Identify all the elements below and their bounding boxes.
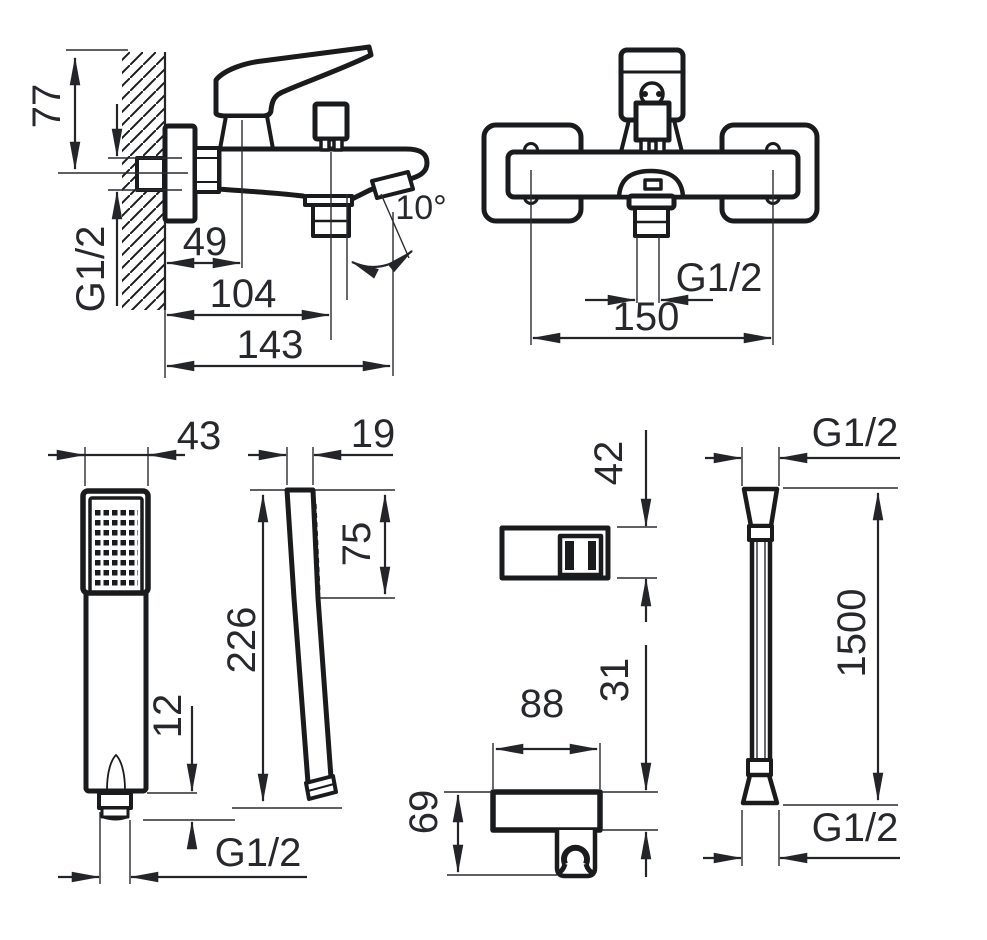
handshower-side-body [287, 490, 331, 783]
bottom-outlet [305, 196, 352, 236]
holder-hook [557, 830, 595, 876]
dim-label-104: 104 [210, 272, 277, 316]
dim-label-1500: 1500 [830, 589, 874, 678]
dim-label-226: 226 [220, 607, 264, 674]
dim-label-hose-bottom-thread: G1/2 [812, 806, 899, 850]
dim-label-hose-top-thread: G1/2 [812, 411, 899, 455]
spray-nozzle-grid [95, 510, 138, 589]
dim-label-outlet-thread: G1/2 [676, 256, 763, 300]
dim-label-spout-angle: 10° [395, 189, 446, 227]
view-handshower-front: 43 12 G1/2 [48, 414, 307, 884]
dim-label-88: 88 [520, 682, 565, 726]
hose-top-collar [749, 526, 772, 540]
dim-label-31: 31 [593, 658, 637, 703]
handshower-handle [86, 591, 146, 791]
mixer-side-body [137, 47, 427, 236]
cartridge-collar [220, 116, 273, 149]
dim-label-143: 143 [237, 323, 304, 367]
dim-label-wall-thread: G1/2 [69, 226, 113, 313]
clamp-bar-right [588, 541, 596, 570]
view-holder-front: 88 31 69 [402, 645, 658, 877]
holder-front-body [493, 792, 600, 830]
hose-tube-fill [752, 540, 770, 762]
dim-label-height-77: 77 [25, 84, 69, 129]
dim-label-19: 19 [351, 412, 396, 456]
dim-label-49: 49 [183, 220, 228, 264]
technical-drawing-canvas: 77 G1/2 49 104 143 10° [0, 0, 987, 940]
view-hose: G1/2 1500 G1/2 [703, 411, 900, 866]
dim-label-69: 69 [402, 790, 446, 835]
connection-nut [195, 148, 219, 192]
view-mixer-front: G1/2 150 [484, 50, 817, 345]
hose-top-fitting [744, 489, 777, 526]
view-holder-top: 42 [502, 430, 657, 622]
holder-top-reference-lines [617, 527, 657, 578]
view-mixer-side: 77 G1/2 49 104 143 10° [25, 47, 447, 378]
clamp-bar-left [565, 541, 574, 570]
connection-nut-front [99, 793, 131, 820]
dim-label-handshower-thread: G1/2 [215, 831, 302, 875]
dim-label-42: 42 [587, 441, 631, 486]
dim-label-43: 43 [177, 414, 222, 458]
dim-label-150: 150 [613, 295, 680, 339]
dim-label-75: 75 [335, 522, 379, 567]
view-handshower-side: 19 75 226 [220, 412, 395, 808]
diverter-knob [315, 104, 347, 139]
front-outlet [619, 171, 683, 236]
dim-label-12: 12 [146, 694, 190, 739]
hose-bottom-fitting [743, 775, 777, 803]
wall-inlet-connector [137, 158, 164, 190]
drawing-svg: 77 G1/2 49 104 143 10° [0, 0, 987, 940]
